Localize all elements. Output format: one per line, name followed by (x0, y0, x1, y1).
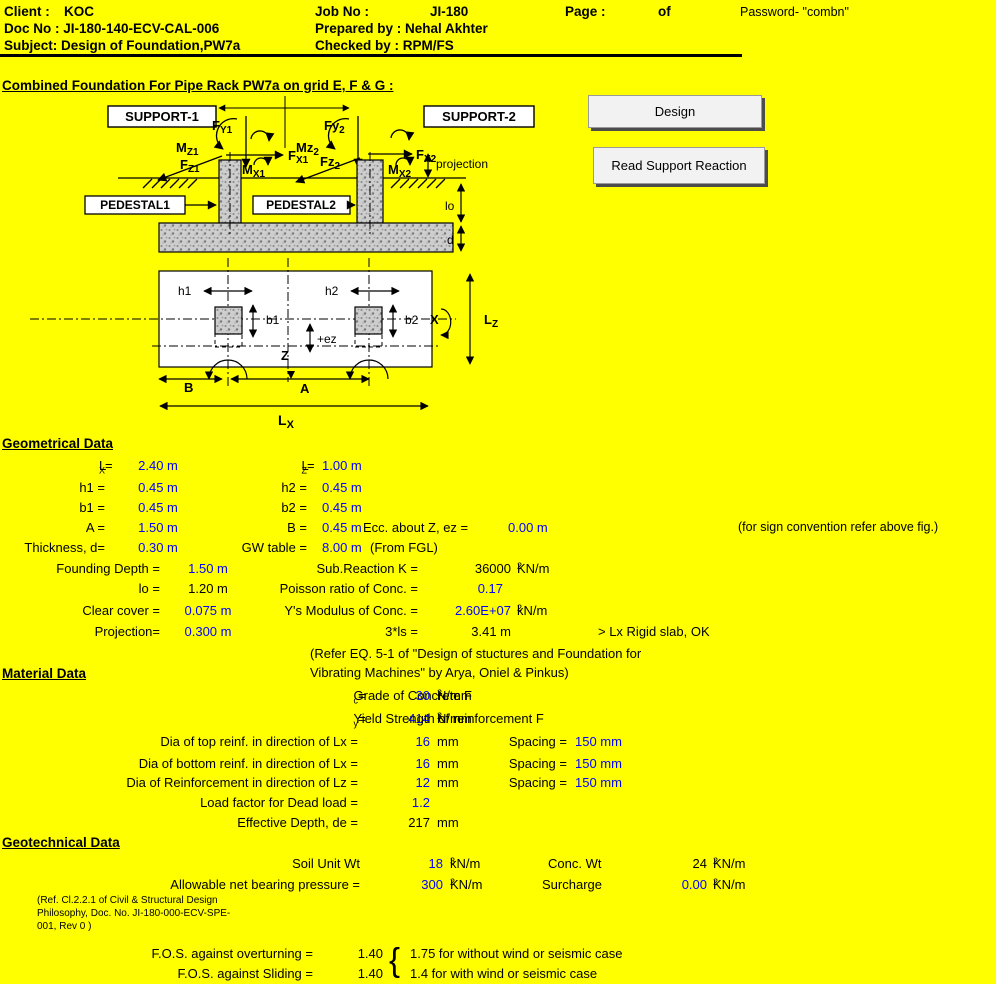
row-refer-eq-note: (Refer EQ. 5-1 of "Design of stuctures a… (0, 646, 996, 664)
load-factor-label: Load factor for Dead load = (0, 795, 358, 810)
input-dia-top-lx[interactable]: 16 (385, 734, 430, 749)
checked-by: Checked by : RPM/FS (315, 38, 454, 53)
lx-label: LX = (0, 458, 105, 476)
fos-overturning-value: 1.40 (350, 946, 383, 961)
row-founding-subreaction: Founding Depth = 1.50 m Sub.Reaction K =… (0, 561, 996, 579)
geotechnical-data-heading: Geotechnical Data (2, 835, 120, 850)
b1-label: b1 (266, 313, 280, 327)
support2-label: SUPPORT-2 (442, 109, 516, 124)
client-value: KOC (64, 4, 94, 19)
fos-overturning-note: 1.75 for without wind or seismic case (410, 946, 622, 961)
dia-lz-unit: mm (437, 775, 459, 790)
projection-dim: projection (428, 154, 488, 177)
input-dia-lz[interactable]: 12 (385, 775, 430, 790)
sub-reaction-unit: KN/m2 (517, 561, 522, 577)
fos-overturning-label: F.O.S. against overturning = (0, 946, 313, 961)
row-lx-lz: LX = 2.40 m LZ = 1.00 m (0, 458, 996, 476)
row-ref-line1: (Ref. Cl.2.2.1 of Civil & Structural Des… (0, 895, 996, 908)
h1-field-label: h1 = (0, 480, 105, 495)
row-yield-strength: Yield Strength of reinforcement Fy= 414 … (0, 711, 996, 729)
d-label: d (447, 233, 454, 247)
dia-lz-label: Dia of Reinforcement in direction of Lz … (0, 775, 358, 790)
sign-convention-note: (for sign convention refer above fig.) (738, 520, 938, 534)
input-dia-bottom-lx[interactable]: 16 (385, 756, 430, 771)
projection-field-label: Projection= (0, 624, 160, 639)
input-h2[interactable]: 0.45 m (322, 480, 362, 495)
sub-reaction-value: 36000 (423, 561, 511, 576)
gw-table-label: GW table = (200, 540, 307, 555)
lz-dim-label: LZ (484, 312, 498, 330)
row-load-factor: Load factor for Dead load = 1.2 (0, 795, 996, 813)
philosophy-ref-line2: Philosophy, Doc. No. JI-180-000-ECV-SPE- (37, 908, 230, 919)
design-button-label: Design (655, 104, 695, 119)
fy2-label: Fy2 (324, 118, 345, 136)
input-b2[interactable]: 0.45 m (322, 500, 362, 515)
fos-sliding-label: F.O.S. against Sliding = (0, 966, 313, 981)
from-fgl-note: (From FGL) (370, 540, 438, 555)
lo-field-label: lo = (0, 581, 160, 596)
effective-depth-value: 217 (385, 815, 430, 830)
fx2-label: FX2 (416, 147, 437, 165)
input-a[interactable]: 1.50 m (118, 520, 198, 535)
bearing-pressure-unit: KN/m2 (450, 877, 455, 893)
h1-label: h1 (178, 284, 192, 298)
spacing-bottom-label: Spacing = (495, 756, 567, 771)
pedestal1-label: PEDESTAL1 (100, 198, 170, 212)
row-cover-modulus: Clear cover = 0.075 m Y's Modulus of Con… (0, 603, 996, 621)
yield-strength-unit: N/mm2 (437, 711, 442, 727)
foundation-diagram: SUPPORT-1 SUPPORT-2 FY1 MZ1 FX1 FZ1 MX1 … (0, 92, 570, 440)
read-support-reaction-label: Read Support Reaction (611, 158, 746, 173)
row-lo-poisson: lo = 1.20 m Poisson ratio of Conc. = 0.1… (0, 581, 996, 599)
spacing-lz-label: Spacing = (495, 775, 567, 790)
row-dia-bottom-lx: Dia of bottom reinf. in direction of Lx … (0, 756, 996, 774)
bearing-pressure-label: Allowable net bearing pressure = (0, 877, 360, 892)
fz1-label: FZ1 (180, 157, 200, 175)
fos-sliding-value: 1.40 (350, 966, 383, 981)
mz1-label: MZ1 (176, 140, 199, 158)
sub-reaction-label: Sub.Reaction K = (230, 561, 418, 576)
row-h1-h2: h1 = 0.45 m h2 = 0.45 m (0, 480, 996, 498)
row-a-b-ez: A = 1.50 m B = 0.45 m Ecc. about Z, ez =… (0, 520, 996, 538)
yield-strength-label: Yield Strength of reinforcement Fy= (0, 711, 358, 729)
lo-label: lo (445, 199, 455, 213)
soil-unit-wt-label: Soil Unit Wt (0, 856, 360, 871)
input-spacing-bottom[interactable]: 150 mm (575, 756, 622, 771)
z-axis-label: Z (281, 348, 289, 363)
page-of-label: of (658, 4, 671, 19)
founding-depth-label: Founding Depth = (0, 561, 160, 576)
soil-unit-wt-unit: kN/m3 (450, 856, 455, 872)
input-surcharge[interactable]: 0.00 (645, 877, 707, 892)
password-note: Password- "combn" (740, 5, 849, 19)
conc-wt-label: Conc. Wt (548, 856, 601, 871)
mx2-label: MX2 (388, 162, 412, 180)
input-h1[interactable]: 0.45 m (118, 480, 198, 495)
support-labels: SUPPORT-1 SUPPORT-2 (108, 106, 534, 127)
read-support-reaction-button[interactable]: Read Support Reaction (593, 147, 765, 184)
h2-field-label: h2 = (200, 480, 307, 495)
three-ls-label: 3*ls = (230, 624, 418, 639)
effective-depth-unit: mm (437, 815, 459, 830)
input-yield-strength[interactable]: 414 (385, 711, 430, 726)
design-button[interactable]: Design (588, 95, 762, 128)
lx-dim-label: LX (278, 412, 295, 431)
input-poisson[interactable]: 0.17 (423, 581, 503, 596)
row-refer-eq-note2: Vibrating Machines" by Arya, Oniel & Pin… (0, 665, 996, 683)
grade-concrete-label: Grade of Concrete Fc = (0, 688, 358, 706)
thickness-label: Thickness, d= (0, 540, 105, 555)
row-b1-b2: b1 = 0.45 m b2 = 0.45 m (0, 500, 996, 518)
input-soil-unit-wt[interactable]: 18 (385, 856, 443, 871)
x-axis-label: X (430, 312, 439, 327)
footing-elevation (159, 223, 453, 252)
dia-bottom-lx-label: Dia of bottom reinf. in direction of Lx … (0, 756, 358, 771)
pedestal2-label: PEDESTAL2 (266, 198, 336, 212)
grade-concrete-unit: N/mm2 (437, 688, 442, 704)
input-ez[interactable]: 0.00 m (508, 520, 548, 535)
input-load-factor[interactable]: 1.2 (385, 795, 430, 810)
spacing-top-label: Spacing = (495, 734, 567, 749)
youngs-modulus-unit: kN/m2 (517, 603, 522, 619)
input-lz[interactable]: 1.00 m (322, 458, 362, 473)
pedestal1-plan (215, 307, 242, 334)
lo-d-dims: lo d (445, 184, 461, 251)
dia-top-lx-label: Dia of top reinf. in direction of Lx = (0, 734, 358, 749)
job-no-label: Job No : (315, 4, 369, 19)
row-dia-top-lx: Dia of top reinf. in direction of Lx = 1… (0, 734, 996, 752)
philosophy-ref-line1: (Ref. Cl.2.2.1 of Civil & Structural Des… (37, 895, 218, 906)
page-label: Page : (565, 4, 606, 19)
input-youngs-modulus[interactable]: 2.60E+07 (423, 603, 511, 618)
sheet-title: Combined Foundation For Pipe Rack PW7a o… (2, 78, 394, 93)
input-b[interactable]: 0.45 m (322, 520, 362, 535)
row-soil-unit-wt: Soil Unit Wt 18 kN/m3 Conc. Wt 24 KN/m2 (0, 856, 996, 874)
philosophy-ref-line3: 001, Rev 0 ) (37, 921, 91, 932)
row-fos-overturning: F.O.S. against overturning = 1.40 1.75 f… (0, 946, 996, 964)
b2-field-label: b2 = (200, 500, 307, 515)
input-spacing-lz[interactable]: 150 mm (575, 775, 622, 790)
ground-line (118, 178, 466, 188)
ez-field-label: Ecc. about Z, ez = (363, 520, 468, 535)
prepared-by: Prepared by : Nehal Akhter (315, 21, 488, 36)
row-fos-sliding: F.O.S. against Sliding = 1.40 1.4 for wi… (0, 966, 996, 984)
youngs-modulus-label: Y's Modulus of Conc. = (230, 603, 418, 618)
projection-label: projection (436, 157, 488, 171)
pedestal2-plan (355, 307, 382, 334)
row-ref-line2: Philosophy, Doc. No. JI-180-000-ECV-SPE- (0, 908, 996, 921)
input-b1[interactable]: 0.45 m (118, 500, 198, 515)
b2-label: b2 (405, 313, 419, 327)
input-spacing-top[interactable]: 150 mm (575, 734, 622, 749)
b-field-label: B = (200, 520, 307, 535)
row-bearing-surcharge: Allowable net bearing pressure = 300 KN/… (0, 877, 996, 895)
support1-label: SUPPORT-1 (125, 109, 199, 124)
h2-label: h2 (325, 284, 339, 298)
clear-cover-label: Clear cover = (0, 603, 160, 618)
dia-top-lx-unit: mm (437, 734, 459, 749)
input-grade-concrete[interactable]: 30 (385, 688, 430, 703)
poisson-label: Poisson ratio of Conc. = (230, 581, 418, 596)
fy1-label: FY1 (212, 118, 233, 136)
conc-wt-unit: KN/m2 (713, 856, 718, 872)
geometrical-data-heading: Geometrical Data (2, 436, 113, 451)
input-thickness[interactable]: 0.30 m (118, 540, 198, 555)
refer-eq-note-line2: Vibrating Machines" by Arya, Oniel & Pin… (310, 665, 569, 680)
effective-depth-label: Effective Depth, de = (0, 815, 358, 830)
b1-field-label: b1 = (0, 500, 105, 515)
conc-wt-value: 24 (645, 856, 707, 871)
rigid-slab-note: > Lx Rigid slab, OK (598, 624, 710, 639)
surcharge-label: Surcharge (542, 877, 602, 892)
three-ls-value: 3.41 m (423, 624, 511, 639)
dia-bottom-lx-unit: mm (437, 756, 459, 771)
input-lx[interactable]: 2.40 m (118, 458, 198, 473)
job-no-value: JI-180 (430, 4, 468, 19)
row-effective-depth: Effective Depth, de = 217 mm (0, 815, 996, 833)
ez-label: +ez (317, 332, 337, 346)
fos-sliding-note: 1.4 for with wind or seismic case (410, 966, 597, 981)
input-gw-table[interactable]: 8.00 m (322, 540, 362, 555)
lz-label: LZ = (200, 458, 307, 476)
row-thickness-gw: Thickness, d= 0.30 m GW table = 8.00 m (… (0, 540, 996, 558)
surcharge-unit: KN/m2 (713, 877, 718, 893)
subject: Subject: Design of Foundation,PW7a (4, 38, 240, 53)
row-grade-concrete: Grade of Concrete Fc = 30 N/mm2 (0, 688, 996, 706)
a-field-label: A = (0, 520, 105, 535)
a-dim-label: A (300, 381, 310, 396)
b-dim-label: B (184, 380, 193, 395)
header-divider (0, 54, 742, 57)
row-ref-line3: 001, Rev 0 ) (0, 921, 996, 934)
spreadsheet-page: { "header": { "client_label": "Client :"… (0, 0, 996, 970)
input-bearing-pressure[interactable]: 300 (385, 877, 443, 892)
refer-eq-note-line1: (Refer EQ. 5-1 of "Design of stuctures a… (310, 646, 641, 661)
row-dia-lz: Dia of Reinforcement in direction of Lz … (0, 775, 996, 793)
row-projection-3ls: Projection= 0.300 m 3*ls = 3.41 m > Lx R… (0, 624, 996, 642)
client-label: Client : (4, 4, 50, 19)
doc-no: Doc No : JI-180-140-ECV-CAL-006 (4, 21, 219, 36)
